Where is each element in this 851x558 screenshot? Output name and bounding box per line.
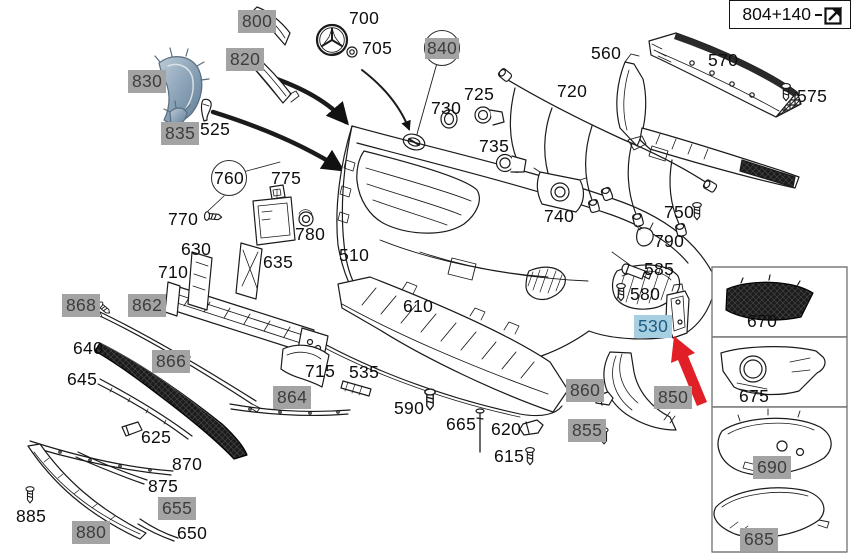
part-callout-860[interactable]: 860 xyxy=(566,379,604,402)
part-callout-875[interactable]: 875 xyxy=(148,476,178,497)
part-callout-585[interactable]: 585 xyxy=(644,259,674,280)
part-callout-705[interactable]: 705 xyxy=(362,38,392,59)
part-callout-645[interactable]: 645 xyxy=(67,369,97,390)
part-callout-570[interactable]: 570 xyxy=(708,50,738,71)
part-callout-710[interactable]: 710 xyxy=(158,262,188,283)
part-callout-610[interactable]: 610 xyxy=(403,296,433,317)
part-callout-625[interactable]: 625 xyxy=(141,427,171,448)
part-callout-685[interactable]: 685 xyxy=(740,528,778,551)
part-callout-775[interactable]: 775 xyxy=(271,168,301,189)
part-callout-790[interactable]: 790 xyxy=(654,231,684,252)
part-callout-650[interactable]: 650 xyxy=(177,523,207,544)
part-callout-635[interactable]: 635 xyxy=(263,252,293,273)
part-callout-label: 760 xyxy=(214,168,244,189)
part-callout-840[interactable]: 840 xyxy=(424,30,460,66)
part-callout-800[interactable]: 800 xyxy=(238,10,276,33)
part-callout-725[interactable]: 725 xyxy=(464,84,494,105)
part-callout-560[interactable]: 560 xyxy=(591,43,621,64)
page-ref-label: 804+140 xyxy=(742,4,811,25)
part-callout-870[interactable]: 870 xyxy=(172,454,202,475)
star-emblem-drawing xyxy=(317,25,357,57)
part-callout-770[interactable]: 770 xyxy=(168,209,198,230)
part-callout-690[interactable]: 690 xyxy=(753,456,791,479)
part-callout-655[interactable]: 655 xyxy=(158,497,196,520)
part-callout-530[interactable]: 530 xyxy=(634,315,672,338)
part-callout-740[interactable]: 740 xyxy=(544,206,574,227)
part-callout-885[interactable]: 885 xyxy=(16,506,46,527)
part-callout-700[interactable]: 700 xyxy=(349,8,379,29)
part-callout-866[interactable]: 866 xyxy=(152,350,190,373)
part-callout-670[interactable]: 670 xyxy=(747,311,777,332)
part-callout-640[interactable]: 640 xyxy=(73,338,103,359)
part-callout-575[interactable]: 575 xyxy=(797,86,827,107)
parts-diagram-page: 8008208308355257007058407307257357205605… xyxy=(0,0,851,558)
page-ref-box[interactable]: 804+140 xyxy=(729,0,851,29)
part-callout-label: 840 xyxy=(425,38,459,59)
part-callout-675[interactable]: 675 xyxy=(739,386,769,407)
part-callout-880[interactable]: 880 xyxy=(72,521,110,544)
external-link-icon[interactable] xyxy=(824,5,844,25)
part-callout-735[interactable]: 735 xyxy=(479,136,509,157)
part-callout-835[interactable]: 835 xyxy=(161,122,199,145)
ref-dash xyxy=(815,14,822,16)
part-callout-525[interactable]: 525 xyxy=(200,119,230,140)
part-callout-665[interactable]: 665 xyxy=(446,414,476,435)
part-callout-862[interactable]: 862 xyxy=(128,294,166,317)
part-callout-780[interactable]: 780 xyxy=(295,224,325,245)
part-callout-720[interactable]: 720 xyxy=(557,81,587,102)
part-callout-864[interactable]: 864 xyxy=(273,386,311,409)
part-callout-630[interactable]: 630 xyxy=(181,239,211,260)
part-callout-590[interactable]: 590 xyxy=(394,398,424,419)
part-callout-580[interactable]: 580 xyxy=(630,284,660,305)
part-callout-855[interactable]: 855 xyxy=(568,419,606,442)
part-callout-830[interactable]: 830 xyxy=(128,70,166,93)
part-callout-615[interactable]: 615 xyxy=(494,446,524,467)
part-callout-730[interactable]: 730 xyxy=(431,98,461,119)
part-callout-535[interactable]: 535 xyxy=(349,362,379,383)
part-callout-620[interactable]: 620 xyxy=(491,419,521,440)
part-callout-750[interactable]: 750 xyxy=(664,202,694,223)
part-callout-820[interactable]: 820 xyxy=(226,48,264,71)
part-callout-868[interactable]: 868 xyxy=(62,294,100,317)
part-callout-715[interactable]: 715 xyxy=(305,361,335,382)
part-callout-510[interactable]: 510 xyxy=(339,245,369,266)
part-callout-850[interactable]: 850 xyxy=(654,386,692,409)
part-callout-760[interactable]: 760 xyxy=(211,160,247,196)
